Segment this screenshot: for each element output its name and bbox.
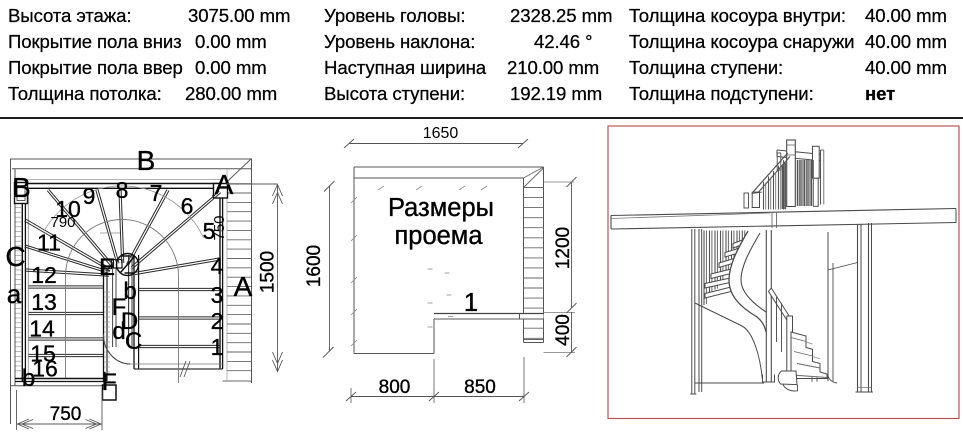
svg-text:2: 2 xyxy=(211,308,224,334)
svg-text:400: 400 xyxy=(553,314,574,346)
svg-text:1650: 1650 xyxy=(423,125,459,142)
svg-text:A: A xyxy=(215,169,234,200)
svg-text:800: 800 xyxy=(379,377,411,398)
svg-text:850: 850 xyxy=(464,377,496,398)
svg-text:C: C xyxy=(5,241,25,272)
svg-text:B: B xyxy=(12,172,31,203)
svg-text:13: 13 xyxy=(31,289,57,315)
svg-text:750: 750 xyxy=(50,404,82,425)
svg-text:1200: 1200 xyxy=(553,227,574,269)
svg-text:1600: 1600 xyxy=(304,245,325,287)
svg-text:F: F xyxy=(102,369,117,396)
svg-text:1: 1 xyxy=(211,334,224,360)
svg-text:6: 6 xyxy=(181,193,194,219)
svg-text:7: 7 xyxy=(150,180,163,206)
svg-text:16: 16 xyxy=(32,356,58,382)
svg-text:b: b xyxy=(22,365,35,392)
svg-text:790: 790 xyxy=(50,214,75,231)
svg-text:1: 1 xyxy=(464,287,478,317)
svg-text:9: 9 xyxy=(83,183,96,209)
svg-text:14: 14 xyxy=(29,316,55,342)
svg-text:4: 4 xyxy=(211,253,224,279)
svg-text:Размеры: Размеры xyxy=(388,194,494,222)
svg-text:B: B xyxy=(137,145,156,176)
svg-text:750: 750 xyxy=(211,215,228,240)
svg-text:8: 8 xyxy=(116,177,129,203)
svg-text:проема: проема xyxy=(394,222,483,250)
svg-text:12: 12 xyxy=(31,262,57,288)
svg-text:d: d xyxy=(112,318,125,345)
svg-text:A: A xyxy=(234,271,253,302)
svg-text:3: 3 xyxy=(211,282,224,308)
svg-text:1500: 1500 xyxy=(258,251,279,293)
svg-text:E: E xyxy=(99,254,115,281)
svg-text:11: 11 xyxy=(37,230,61,256)
svg-text:a: a xyxy=(7,279,22,309)
svg-text:C: C xyxy=(125,328,142,355)
